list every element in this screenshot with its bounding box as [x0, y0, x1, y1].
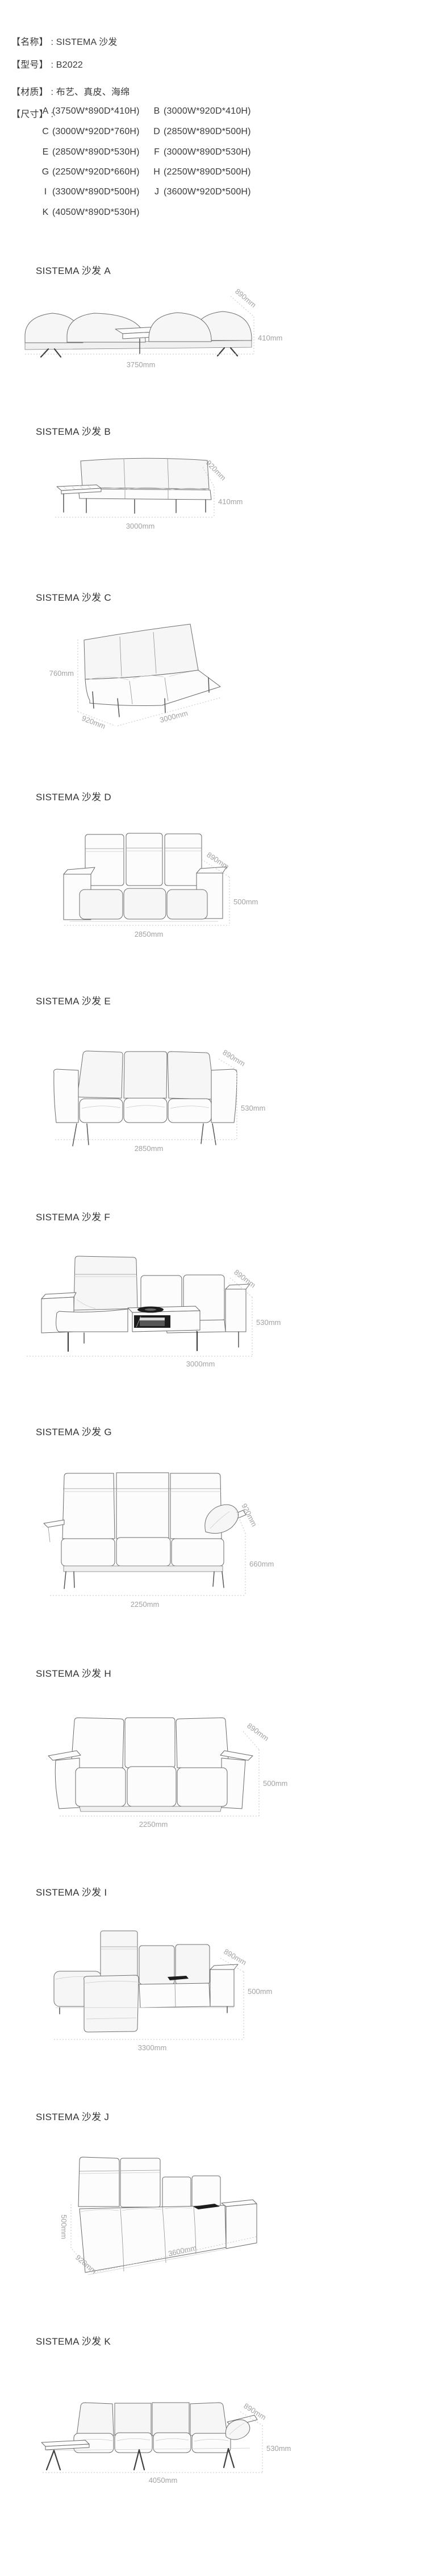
- size-key: F: [152, 147, 161, 157]
- size-item-h: H(2250W*890D*500H): [152, 167, 251, 177]
- size-key: I: [41, 187, 50, 197]
- sofa-h-drawing: 890mm 500mm 2250mm: [0, 1711, 426, 1839]
- sofa-j-drawing: 500mm 920mm 3600mm: [0, 2143, 426, 2285]
- size-item-g: G(2250W*920D*660H): [41, 167, 140, 177]
- size-dims: (2250W*920D*660H): [52, 167, 140, 177]
- sofa-k-line-art: [41, 2403, 257, 2470]
- separator: :: [48, 60, 56, 70]
- sofa-i-line-art: [54, 1931, 238, 2032]
- sofa-h-line-art: [48, 1718, 253, 1811]
- sofa-c-drawing: 760mm 920mm 3000mm: [0, 614, 426, 736]
- sofa-f-line-art: [41, 1256, 250, 1351]
- section-e-title: SISTEMA 沙发 E: [36, 993, 111, 1007]
- sofa-c-line-art: [84, 624, 220, 717]
- section-j-title: SISTEMA 沙发 J: [36, 2109, 109, 2123]
- sofa-k-drawing: 890mm 530mm 4050mm: [0, 2390, 426, 2501]
- height-dimension-label: 530mm: [256, 1318, 281, 1327]
- size-key: H: [152, 167, 161, 177]
- depth-dimension-label: 890mm: [245, 1721, 270, 1743]
- size-item-f: F(3000W*890D*530H): [152, 147, 251, 157]
- size-key: C: [41, 127, 50, 137]
- sofa-a-drawing: 890mm 410mm 3750mm: [0, 281, 426, 381]
- size-item-e: E(2850W*890D*530H): [41, 147, 140, 157]
- size-dims: (2850W*890D*500H): [164, 127, 251, 137]
- depth-dimension-label: 890mm: [223, 1947, 248, 1967]
- sofa-a-line-art: [25, 311, 252, 357]
- sofa-d-drawing: 890mm 500mm 2850mm: [0, 813, 426, 944]
- height-dimension-label: 500mm: [233, 898, 258, 906]
- section-d-title: SISTEMA 沙发 D: [36, 789, 111, 803]
- size-dims: (3750W*890D*410H): [52, 106, 140, 117]
- width-dimension-label: 4050mm: [149, 2476, 178, 2484]
- width-dimension-label: 3000mm: [158, 709, 189, 725]
- model-row: 【型号】 : B2022: [11, 57, 83, 70]
- section-c-title: SISTEMA 沙发 C: [36, 589, 111, 604]
- height-dimension-label: 410mm: [218, 497, 243, 506]
- size-key: D: [152, 127, 161, 137]
- sofa-f-drawing: 890mm 530mm 3000mm: [0, 1245, 426, 1378]
- sofa-j-line-art: [78, 2157, 257, 2275]
- height-dimension-label: 500mm: [60, 2214, 68, 2239]
- size-key: E: [41, 147, 50, 157]
- size-dims: (3300W*890D*500H): [52, 187, 140, 197]
- tall-backrest: [74, 1256, 137, 1310]
- material-value: 布艺、真皮、海绵: [56, 88, 130, 97]
- sofa-g-drawing: 920mm 660mm 2250mm: [0, 1469, 426, 1611]
- shelf-item: [140, 1318, 165, 1320]
- section-g-title: SISTEMA 沙发 G: [36, 1424, 112, 1438]
- size-dims: (3600W*920D*500H): [164, 187, 251, 197]
- sofa-i-drawing: 890mm 500mm 3300mm: [0, 1928, 426, 2053]
- sofa-b-line-art: [57, 458, 211, 513]
- size-key: A: [41, 106, 50, 117]
- section-b-title: SISTEMA 沙发 B: [36, 423, 111, 438]
- width-dimension-label: 2250mm: [131, 1600, 160, 1609]
- sofa-e-drawing: 890mm 530mm 2850mm: [0, 1006, 426, 1160]
- material-row: 【材质】 : 布艺、真皮、海绵: [11, 84, 130, 98]
- model-value: B2022: [56, 60, 83, 70]
- sofa-g-line-art: [44, 1473, 246, 1589]
- width-dimension-label: 3300mm: [138, 2043, 167, 2052]
- size-item-k: K(4050W*890D*530H): [41, 207, 140, 218]
- size-item-a: A(3750W*890D*410H): [41, 106, 140, 117]
- size-dims: (3000W*920D*410H): [164, 106, 251, 117]
- width-dimension-label: 3750mm: [127, 360, 156, 369]
- size-item-j: J(3600W*920D*500H): [152, 187, 251, 197]
- width-dimension-label: 3000mm: [186, 1360, 215, 1368]
- material-label: 【材质】: [11, 88, 48, 97]
- height-dimension-label: 760mm: [49, 669, 74, 678]
- width-dimension-label: 2850mm: [135, 1144, 164, 1153]
- size-item-i: I(3300W*890D*500H): [41, 187, 140, 197]
- size-item-b: B(3000W*920D*410H): [152, 106, 251, 117]
- model-label: 【型号】: [11, 60, 48, 70]
- console-with-speaker: [128, 1306, 200, 1332]
- size-key: K: [41, 207, 50, 218]
- size-dims: (2250W*890D*500H): [164, 167, 251, 177]
- depth-dimension-label: 890mm: [233, 287, 258, 309]
- width-dimension-label: 3000mm: [126, 522, 155, 530]
- ottoman: [84, 1975, 139, 2032]
- sofa-b-drawing: 920mm 410mm 3000mm: [0, 443, 426, 537]
- height-dimension-label: 410mm: [258, 334, 282, 342]
- sofa-d-line-art: [64, 833, 227, 921]
- shelf-item: [140, 1320, 165, 1326]
- spec-sheet-page: 【名称】 : SISTEMA 沙发 【型号】 : B2022 【材质】 : 布艺…: [0, 0, 426, 2576]
- height-dimension-label: 500mm: [248, 1987, 272, 1996]
- width-dimension-label: 2850mm: [135, 930, 164, 938]
- height-dimension-label: 530mm: [266, 2444, 291, 2453]
- section-i-title: SISTEMA 沙发 I: [36, 1884, 107, 1898]
- left-wing-armrest: [44, 1520, 64, 1527]
- height-dimension-label: 500mm: [263, 1779, 287, 1788]
- section-h-title: SISTEMA 沙发 H: [36, 1665, 111, 1680]
- section-a-title: SISTEMA 沙发 A: [36, 263, 111, 277]
- section-k-title: SISTEMA 沙发 K: [36, 2333, 111, 2348]
- height-dimension-label: 660mm: [249, 1560, 274, 1568]
- size-key: B: [152, 106, 161, 117]
- product-name-value: SISTEMA 沙发: [56, 38, 118, 47]
- size-dims: (4050W*890D*530H): [52, 207, 140, 218]
- size-item-d: D(2850W*890D*500H): [152, 127, 251, 137]
- size-dims: (3000W*920D*760H): [52, 127, 140, 137]
- size-dims: (2850W*890D*530H): [52, 147, 140, 157]
- sofa-e-line-art: [54, 1051, 237, 1146]
- size-dims: (3000W*890D*530H): [164, 147, 251, 157]
- separator: :: [48, 38, 56, 47]
- height-dimension-label: 530mm: [241, 1104, 265, 1112]
- size-key: G: [41, 167, 50, 177]
- section-f-title: SISTEMA 沙发 F: [36, 1209, 110, 1223]
- product-name-row: 【名称】 : SISTEMA 沙发: [11, 34, 118, 48]
- size-key: J: [152, 187, 161, 197]
- width-dimension-label: 2250mm: [139, 1820, 168, 1829]
- depth-dimension-label: 890mm: [221, 1048, 247, 1068]
- size-item-c: C(3000W*920D*760H): [41, 127, 140, 137]
- depth-dimension-label: 920mm: [81, 714, 107, 731]
- name-label: 【名称】: [11, 38, 48, 47]
- separator: :: [48, 88, 56, 97]
